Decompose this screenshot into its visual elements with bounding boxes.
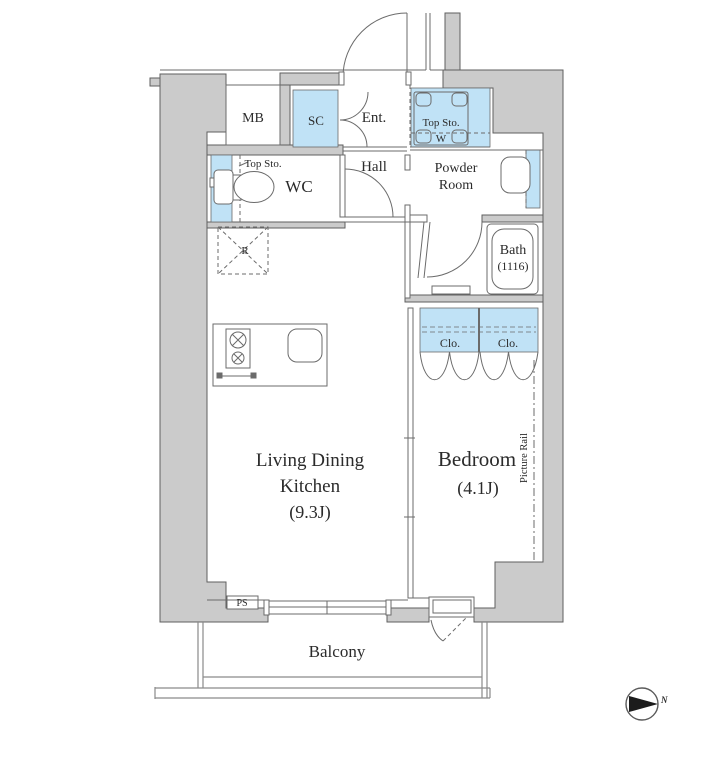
wall-below-bath <box>405 295 543 302</box>
entrance-door-arc <box>343 13 407 77</box>
label-closet-left: Clo. <box>440 336 460 350</box>
balcony-right-edge <box>482 622 487 698</box>
compass-icon: N <box>626 688 668 720</box>
wall-bottom-mid <box>387 608 429 622</box>
bath-door-arc <box>427 222 482 277</box>
bath-threshold <box>432 286 470 294</box>
floor-plan-page: N MB SC Ent. Top Sto. W Hall Top Sto. WC… <box>0 0 720 760</box>
toilet-handle-icon <box>210 178 214 187</box>
label-powder-line1: Powder <box>435 161 478 176</box>
label-wc: WC <box>285 177 312 196</box>
label-picture-rail: Picture Rail <box>519 433 530 483</box>
bath-door-leaf <box>418 222 430 278</box>
hall-ldk-step <box>345 217 405 222</box>
wall-top-entry-bar <box>445 13 460 70</box>
balcony-rail-caps <box>155 687 490 699</box>
label-hall: Hall <box>361 159 387 175</box>
ldk-window-jamb-left <box>264 600 269 615</box>
label-fridge: R <box>241 245 249 257</box>
vestibule-left-wall <box>405 222 410 298</box>
label-wc-top-storage: Top Sto. <box>244 158 281 170</box>
bath-door-jamb <box>410 215 427 222</box>
bedroom-door-swing-arc <box>431 620 443 641</box>
ldk-bedroom-partition <box>408 308 413 598</box>
floor-plan-drawing: N MB SC Ent. Top Sto. W Hall Top Sto. WC… <box>0 0 720 760</box>
closet-door-arc-2 <box>450 352 480 380</box>
windows <box>264 597 474 641</box>
entrance-jamb-left <box>339 72 344 85</box>
toilet-tank-icon <box>214 170 233 204</box>
wall-stub-top-left <box>150 78 160 86</box>
counter-edge-cap-right <box>251 373 256 378</box>
toilet-bowl-icon <box>234 172 274 203</box>
corridor-side-lines <box>426 13 430 70</box>
balcony-outer-rails <box>155 688 490 698</box>
label-bath-line2: (1116) <box>497 259 528 273</box>
label-bedroom-line1: Bedroom <box>438 447 516 471</box>
label-ldk-line2: Kitchen <box>280 476 341 497</box>
hall-left-wall <box>340 155 345 217</box>
bedroom-door-swing-leaf <box>443 617 467 641</box>
wall-mb-sc-divider <box>280 85 290 147</box>
label-powder-line2: Room <box>439 178 473 193</box>
compass-north-label: N <box>660 695 668 705</box>
label-ldk-line3: (9.3J) <box>289 502 331 523</box>
label-closet-right: Clo. <box>498 336 518 350</box>
label-ps: PS <box>236 598 247 609</box>
label-washer: W <box>436 133 447 145</box>
closet-door-arc-3 <box>480 352 509 380</box>
label-bedroom-line2: (4.1J) <box>457 478 499 499</box>
entrance-jamb-right <box>406 72 411 85</box>
wall-band-above-sc <box>280 73 343 85</box>
balcony-left-edge <box>198 622 203 688</box>
label-mb: MB <box>242 111 264 126</box>
ldk-window-jamb-right <box>386 600 391 615</box>
label-bath-line1: Bath <box>500 243 526 258</box>
hall-powder-wall-a <box>405 155 410 170</box>
label-entry-top-storage: Top Sto. <box>422 117 459 129</box>
kitchen-counter <box>213 324 327 386</box>
wall-powder-bath <box>482 215 543 222</box>
wash-basin-icon <box>501 157 530 193</box>
counter-edge-cap-left <box>217 373 222 378</box>
label-balcony: Balcony <box>309 642 366 661</box>
closet-door-arc-1 <box>420 352 450 380</box>
hall-door-arc <box>345 169 393 217</box>
label-sc: SC <box>308 113 324 128</box>
ent-hall-step <box>343 147 407 151</box>
hall-powder-wall-b <box>405 205 410 222</box>
label-ldk-line1: Living Dining <box>256 450 365 471</box>
label-entrance: Ent. <box>362 110 387 126</box>
